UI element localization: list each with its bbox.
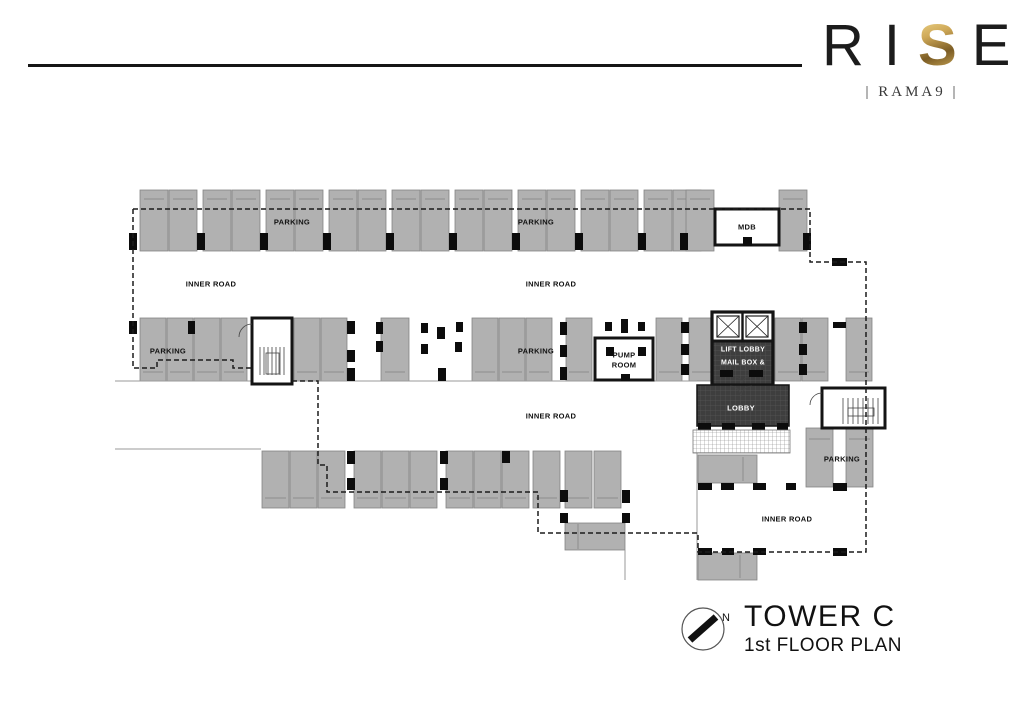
lower-parking-band [262, 451, 625, 550]
floor-plan-title: 1st FLOOR PLAN [744, 635, 902, 657]
north-compass-icon [682, 608, 724, 650]
label-mdb: MDB [738, 223, 756, 232]
label-pump-room-1: PUMP [613, 351, 636, 360]
label-parking-mid-left: PARKING [150, 347, 186, 356]
entry-walkway-hatch [693, 430, 790, 453]
stairwell-east [810, 388, 885, 428]
label-lobby: LOBBY [727, 404, 755, 413]
label-parking-right: PARKING [824, 455, 860, 464]
label-parking-top-right: PARKING [518, 218, 554, 227]
top-parking-row [140, 190, 807, 251]
page: RISE | RAMA9 | [0, 0, 1024, 724]
north-label: N [722, 612, 730, 624]
label-inner-road-top-left: INNER ROAD [186, 280, 237, 289]
label-lift-lobby-1: LIFT LOBBY [721, 347, 765, 354]
tower-title: TOWER C [744, 600, 896, 634]
label-inner-road-center: INNER ROAD [526, 412, 577, 421]
label-inner-road-bottom-right: INNER ROAD [762, 515, 813, 524]
label-parking-top-left: PARKING [274, 218, 310, 227]
label-pump-room-2: ROOM [612, 361, 637, 370]
label-parking-mid-center: PARKING [518, 347, 554, 356]
label-inner-road-top-center: INNER ROAD [526, 280, 577, 289]
label-lift-lobby-2: MAIL BOX & [721, 360, 765, 367]
